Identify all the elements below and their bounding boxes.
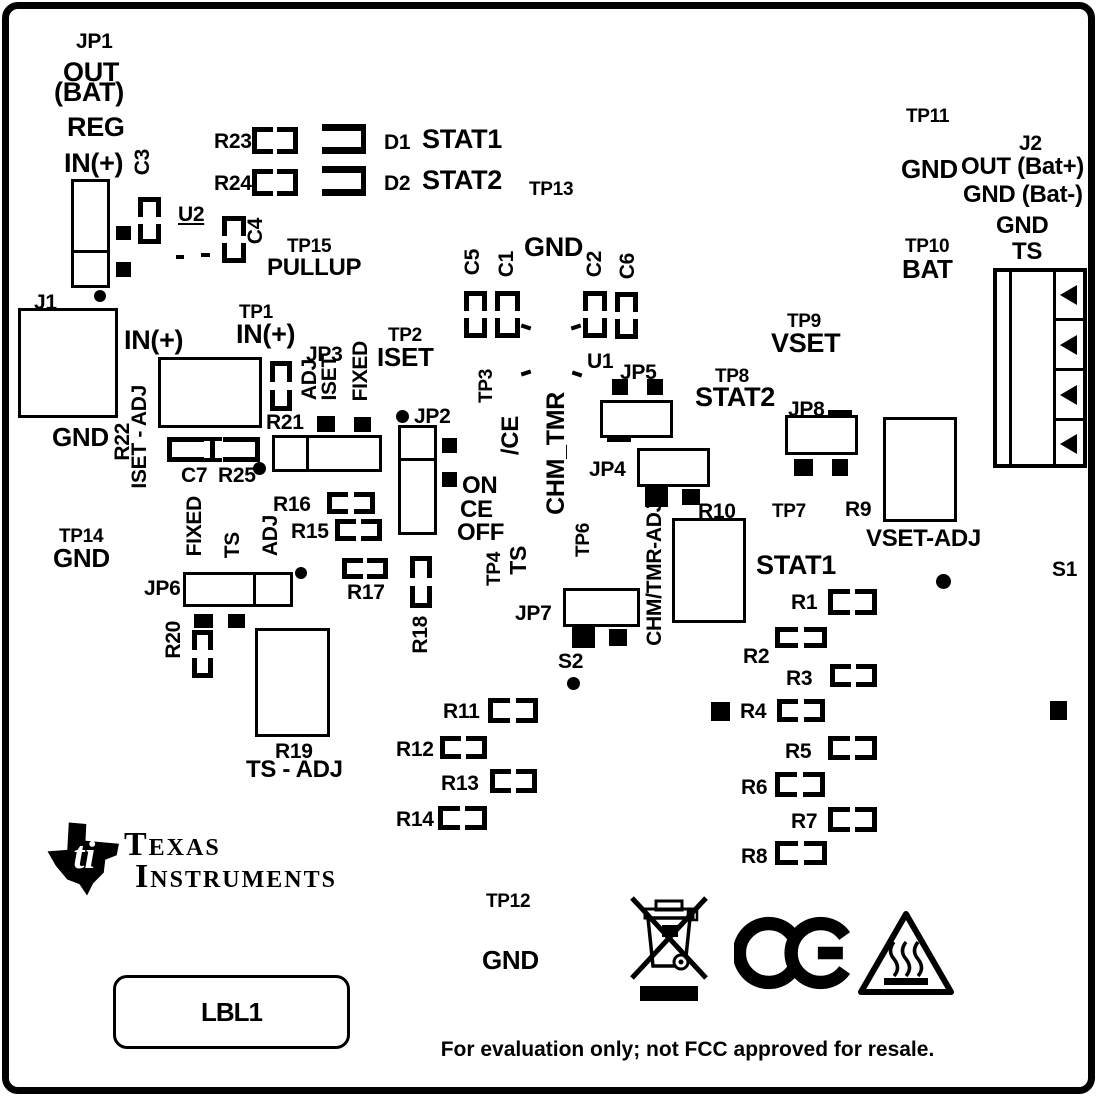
smd-pad [442,472,457,487]
weee-bin-icon [630,892,710,1002]
resistor-footprint-r14 [438,806,487,830]
brand-line2: Instruments [135,860,337,894]
resistor-footprint-r17 [342,558,388,579]
resistor-footprint-r3 [830,664,877,687]
label-jp2-on: ON [462,474,497,498]
label-jp2-off: OFF [457,521,504,545]
resistor-footprint-r7 [828,807,877,832]
smd-pad [317,416,335,432]
resistor-footprint-r15 [335,519,382,541]
label-jp7: JP7 [515,603,551,624]
label-tp4-ts: TS [507,546,530,575]
label-chm-tmr: CHM_TMR [544,392,569,515]
smd-pad [354,417,371,432]
label-jp6-adj: ADJ [260,515,281,556]
label-jp1: JP1 [76,31,112,52]
pin1-dot [936,574,951,589]
label-s1: S1 [1052,559,1077,580]
brand-line1: Texas [124,828,221,862]
label-tp8-stat2: STAT2 [695,384,775,411]
potentiometer-r10 [672,518,746,623]
smd-pad [612,379,628,395]
label-u1: U1 [587,351,613,372]
label-c3: C3 [132,149,153,175]
label-d1: D1 [384,132,410,153]
label-jp1-bat: (BAT) [54,79,124,106]
label-u2: U2 [178,204,204,225]
potentiometer-r22 [158,357,262,428]
label-tp6: TP6 [574,523,593,557]
jp3-divider [306,437,309,470]
label-tp3: TP3 [477,369,496,403]
label-gnd-top: GND [524,234,583,261]
wire-entry-arrow-icon [1060,335,1077,355]
led-footprint-d1 [322,124,366,154]
resistor-footprint-r18 [410,556,432,608]
label-tp9-vset: VSET [771,330,840,357]
smd-pad [228,614,245,628]
label-jp6-fixed: FIXED [184,496,205,556]
pin1-dot [94,290,106,302]
resistor-footprint-r4 [777,699,825,722]
label-c5: C5 [462,249,483,275]
jp1-divider [73,250,108,253]
label-r20: R20 [163,621,184,659]
wire-entry-arrow-icon [1060,385,1077,405]
jp2-divider [400,458,435,461]
jp5-tab [607,436,631,442]
jumper-block-jp5 [600,400,673,438]
label-r16: R16 [273,494,311,515]
u2-outline-tick [201,253,210,257]
resistor-footprint-r13 [490,769,537,793]
label-stat1: STAT1 [756,552,836,579]
jumper-block-jp7 [563,588,640,627]
capacitor-footprint-c6 [615,292,638,339]
resistor-footprint-r21 [270,361,292,411]
label-s2: S2 [558,651,583,672]
label-chm-tmr-adj: CHM/TMR-ADJ [644,501,665,646]
label-j2-out: OUT (Bat+) [961,155,1084,179]
smd-pad [442,438,457,453]
wire-entry-arrow-icon [1060,285,1077,305]
label-r6: R6 [741,777,767,798]
label-r11: R11 [443,701,479,722]
label-j2-gnd2: GND [996,214,1048,238]
label-tp13: TP13 [529,180,573,199]
label-j1-in: IN(+) [124,327,183,354]
label-tp4: TP4 [485,552,504,586]
label-c2: C2 [584,251,605,277]
label-jp3-fixed: FIXED [350,341,371,401]
resistor-footprint-r12 [440,736,487,759]
label-tp11: TP11 [906,107,949,126]
label-r1: R1 [791,592,817,613]
label-r9: R9 [845,499,871,520]
label-r25: R25 [218,465,256,486]
capacitor-footprint-c3 [138,197,161,244]
label-sticker-lbl1: LBL1 [113,975,350,1049]
jumper-block-jp8 [785,415,858,455]
lbl1-text: LBL1 [201,997,262,1028]
smd-pad [116,262,131,277]
label-r5: R5 [785,741,811,762]
resistor-footprint-r23 [252,127,298,154]
resistor-footprint-r6 [775,772,825,797]
potentiometer-r19 [255,628,330,737]
j2-cell-line [1053,368,1083,371]
label-r3: R3 [786,668,812,689]
label-ce-bar: /CE [499,416,523,455]
label-r14: R14 [396,809,434,830]
smd-pad [647,379,663,395]
pin1-dot [253,462,266,475]
label-d2: D2 [384,173,410,194]
label-r7: R7 [791,811,817,832]
label-r13: R13 [441,773,479,794]
resistor-footprint-r11 [488,698,538,723]
label-jp3-adj: ADJ [299,359,320,400]
label-r24: R24 [214,173,252,194]
led-footprint-d2 [322,166,366,196]
label-r21: R21 [266,412,304,433]
jumper-block-jp3 [272,435,382,472]
smd-pad [116,226,131,240]
label-tp12: TP12 [486,892,530,911]
jumper-block-jp1 [71,179,110,288]
terminal-block-j2 [993,268,1087,468]
label-pullup: PULLUP [267,256,361,280]
label-jp1-in: IN(+) [64,150,123,177]
resistor-footprint-r2 [775,627,827,648]
label-c1: C1 [496,251,517,277]
c7-polarity-mark [202,437,222,462]
smd-pad [794,459,813,476]
resistor-footprint-r5 [828,736,877,760]
label-stat2-led: STAT2 [422,167,502,194]
label-stat1-led: STAT1 [422,126,502,153]
connector-j1 [18,308,118,418]
pin1-dot [396,410,409,423]
label-r8: R8 [741,846,767,867]
resistor-footprint-r20 [192,630,213,678]
label-tp14-gnd: GND [53,545,110,571]
u2-outline-tick [176,255,184,259]
label-r4: R4 [740,701,766,722]
label-ts-adj: TS - ADJ [246,758,343,782]
capacitor-footprint-c1 [495,291,520,338]
smd-pad [832,459,848,476]
pin1-dot [295,567,307,579]
smd-pad [194,614,213,628]
label-r12: R12 [396,739,434,760]
label-j1-gnd: GND [52,424,109,450]
label-r2: R2 [743,646,769,667]
label-jp1-reg: REG [67,114,125,141]
capacitor-footprint-c5 [464,291,487,338]
j2-inner-line [1009,272,1012,464]
j2-cell-line [1053,418,1083,421]
label-tp10-bat: BAT [902,256,953,282]
label-j2-ts: TS [1012,240,1042,264]
jumper-block-jp4 [637,448,710,487]
label-jp2: JP2 [414,406,450,427]
label-r15: R15 [291,521,329,542]
label-jp4: JP4 [589,459,625,480]
resistor-footprint-r16 [327,492,375,514]
label-j2: J2 [1019,133,1042,154]
jp6-divider [253,574,256,605]
label-tp12-gnd: GND [482,947,539,973]
label-jp3-iset: ISET [319,355,340,400]
wire-entry-arrow-icon [1060,434,1077,454]
ti-monogram: ti [73,833,95,877]
label-jp6-ts: TS [222,532,243,558]
fcc-disclaimer: For evaluation only; not FCC approved fo… [440,1038,935,1062]
capacitor-footprint-c4 [222,216,246,263]
label-tp7: TP7 [772,502,806,521]
label-c6: C6 [617,253,638,279]
capacitor-footprint-c2 [583,291,607,338]
potentiometer-r9 [883,417,957,522]
label-iset-adj: ISET - ADJ [129,385,150,489]
j2-cell-line [1053,318,1083,321]
label-r18: R18 [410,616,431,654]
resistor-footprint-r1 [828,589,877,615]
smd-pad [711,702,730,721]
label-c4: C4 [245,218,266,244]
label-r17: R17 [347,582,385,603]
label-tp1-in: IN(+) [236,321,295,348]
label-c7: C7 [181,465,207,486]
ce-mark-icon [734,910,850,996]
pin1-dot [567,677,580,690]
ti-logo: ti [46,820,122,898]
smd-pad [609,629,627,646]
hot-surface-warning-icon [856,908,956,998]
smd-pad [572,626,595,648]
label-r23: R23 [214,131,252,152]
jumper-block-jp2 [398,425,437,535]
label-j2-gnd: GND (Bat-) [963,183,1083,207]
label-vset-adj: VSET-ADJ [866,527,981,551]
label-jp6: JP6 [144,578,180,599]
smd-pad [1050,701,1067,720]
label-tp11-gnd: GND [901,156,958,182]
resistor-footprint-r8 [775,841,827,865]
resistor-footprint-r24 [252,169,298,196]
label-tp2-iset: ISET [377,344,434,370]
jumper-block-jp6 [183,572,293,607]
